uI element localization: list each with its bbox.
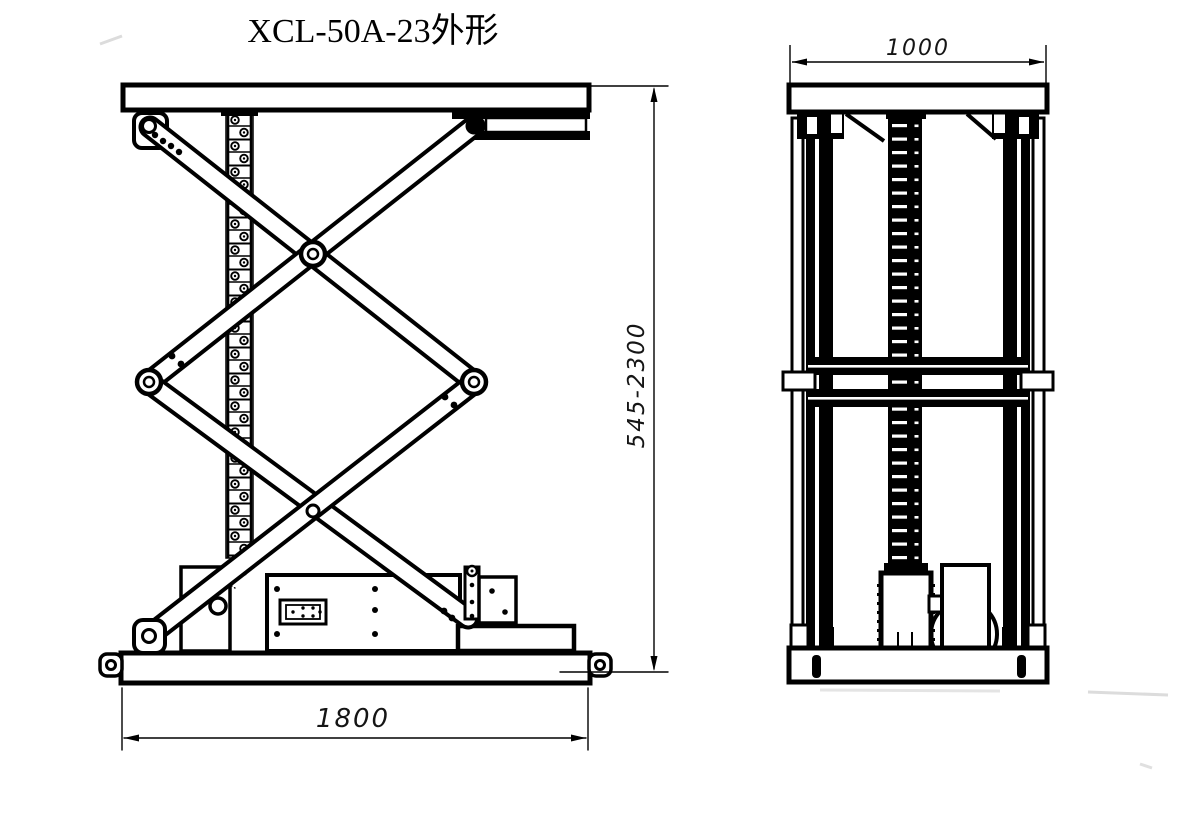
arm-hole [210, 598, 226, 614]
brace-left [846, 114, 884, 141]
side-width-value: 1800 [316, 704, 390, 734]
top-roller [466, 118, 483, 135]
front-view: 1000 [783, 36, 1053, 682]
front-width-dimension: 1000 [790, 36, 1046, 83]
top-platform [123, 85, 589, 110]
lower-cross-hole [307, 505, 319, 517]
front-width-value: 1000 [886, 36, 950, 61]
bottom-pivot-bracket [134, 620, 165, 653]
clamp-left [783, 372, 815, 390]
height-dimension: 545-2300 [560, 86, 668, 672]
base-frame [100, 653, 611, 683]
scissor-arms [149, 126, 474, 635]
brace-right [967, 114, 996, 139]
chain-housing [879, 563, 933, 651]
drawing-title: XCL-50A-23外形 [247, 12, 498, 50]
front-chain-column [886, 111, 926, 569]
side-view: 1800 545-2300 [100, 85, 668, 750]
arm-bolts [152, 132, 458, 622]
motor-body [942, 565, 989, 653]
clamp-right [1021, 372, 1053, 390]
carriage-bracket [465, 566, 516, 623]
front-platform [789, 85, 1047, 112]
width-dimension: 1800 [122, 688, 588, 750]
front-base-plate [789, 648, 1047, 682]
top-left-pin [143, 120, 156, 133]
drawing-sheet: XCL-50A-23外形 [0, 0, 1203, 839]
nameplate [280, 600, 326, 624]
side-height-value: 545-2300 [624, 322, 650, 449]
pivots [137, 118, 486, 615]
technical-drawing-canvas: XCL-50A-23外形 [0, 0, 1203, 839]
bottom-rail [458, 626, 574, 651]
